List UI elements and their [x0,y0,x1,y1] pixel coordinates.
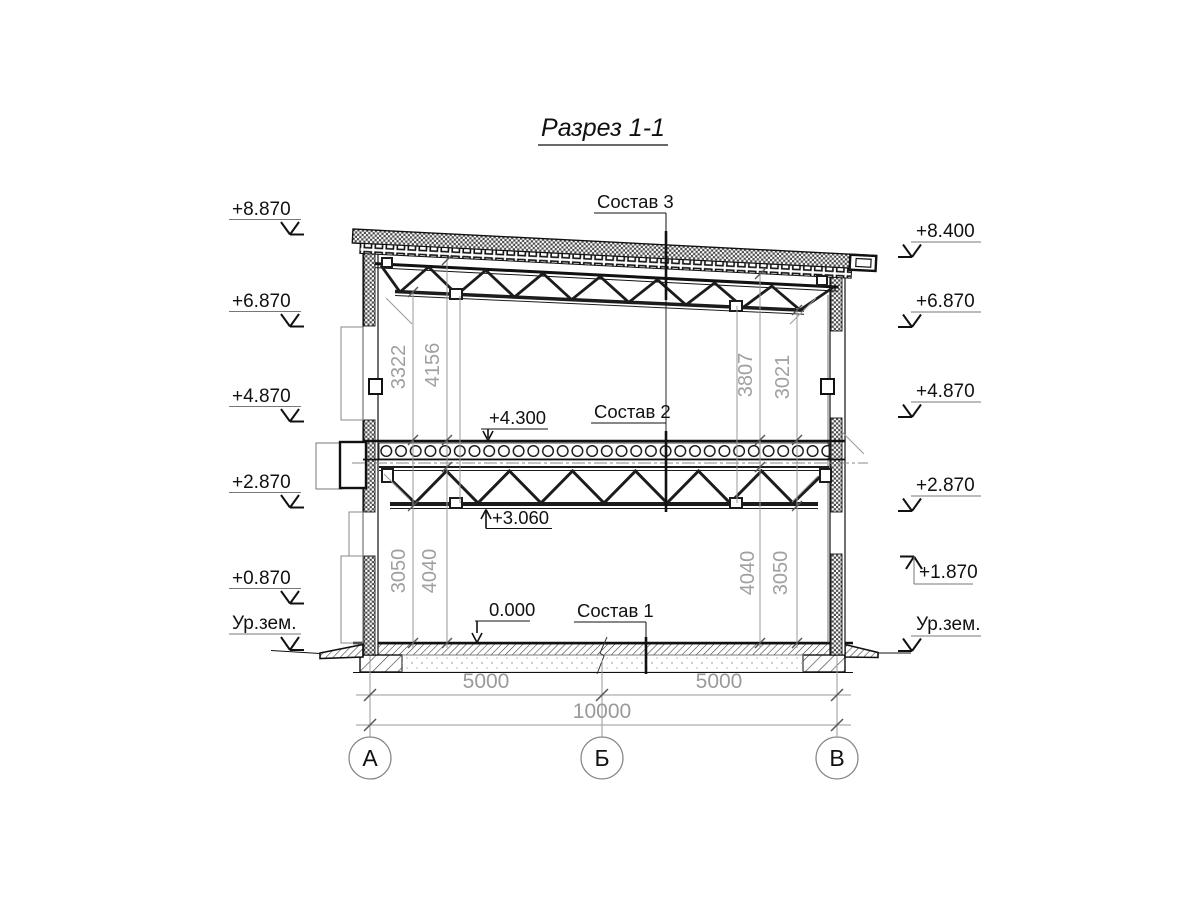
elev-right-4: +1.870 [919,562,978,583]
elev-left-1: +6.870 [232,291,291,312]
left-wall-bracket [369,379,382,394]
connector-plate [730,498,742,508]
dim-span-right: 5000 [696,670,743,693]
elev-left-2: +4.870 [232,386,291,407]
dim-4156: 4156 [422,343,444,388]
mid-truss-bearing-left [382,469,393,482]
section-drawing-sheet: Разрез 1-1 [0,0,1200,900]
level-callouts: +4.300 +3.060 0.000 [472,407,552,643]
mid-truss-bearing-right [820,469,831,482]
axis-bubbles: А Б В [349,737,858,779]
right-wall-bracket [821,379,834,394]
dim-3050-right: 3050 [770,551,792,596]
level-4300-label: +4.300 [489,407,546,428]
elev-right-1: +6.870 [916,291,975,312]
dim-total: 10000 [573,700,631,723]
dim-3322: 3322 [388,345,410,390]
elev-left-3: +2.870 [232,472,291,493]
dim-3021: 3021 [772,355,794,400]
elevation-marks-right: +8.400 +6.870 +4.870 +2.870 +1.870 Ур.зе… [898,221,981,651]
elev-right-3: +2.870 [916,475,975,496]
left-console-detail [340,442,366,488]
section-drawing: Разрез 1-1 [0,0,1200,900]
connector-plate [730,301,742,311]
sostav2-label: Состав 2 [594,401,671,422]
dim-4040-right: 4040 [737,551,759,596]
elev-left-0: +8.870 [232,199,291,220]
sostav3-label: Состав 3 [597,191,674,212]
roof-truss-bearing-left [382,258,392,267]
left-wall [316,233,382,655]
elev-right-2: +4.870 [916,381,975,402]
level-3060-label: +3.060 [492,507,549,528]
sostav1-label: Состав 1 [577,600,654,621]
left-apron [320,645,363,659]
dim-4040-left: 4040 [419,549,441,594]
elev-right-5: Ур.зем. [916,614,980,635]
title-text: Разрез 1-1 [541,114,665,142]
right-apron [845,645,878,658]
vertical-dimension-labels: 3322 4156 3807 3021 3050 4040 4040 3050 [388,343,794,596]
dim-3050-left: 3050 [388,549,410,594]
mid-floor-slab [352,441,868,463]
elev-left-5: Ур.зем. [232,613,296,634]
level-0000-label: 0.000 [489,599,535,620]
roof-truss-bearing-right [817,276,827,285]
elev-right-0: +8.400 [916,221,975,242]
axis-label-a: А [362,745,378,771]
dim-span-left: 5000 [463,670,510,693]
dim-3807: 3807 [735,353,757,398]
elev-left-4: +0.870 [232,568,291,589]
drawing-title: Разрез 1-1 [538,114,668,145]
roof-slab [351,229,876,293]
axis-label-b: Б [594,745,609,771]
axis-label-v: В [829,745,844,771]
elevation-marks-left: +8.870 +6.870 +4.870 +2.870 +0.870 Ур.зе… [229,199,304,650]
